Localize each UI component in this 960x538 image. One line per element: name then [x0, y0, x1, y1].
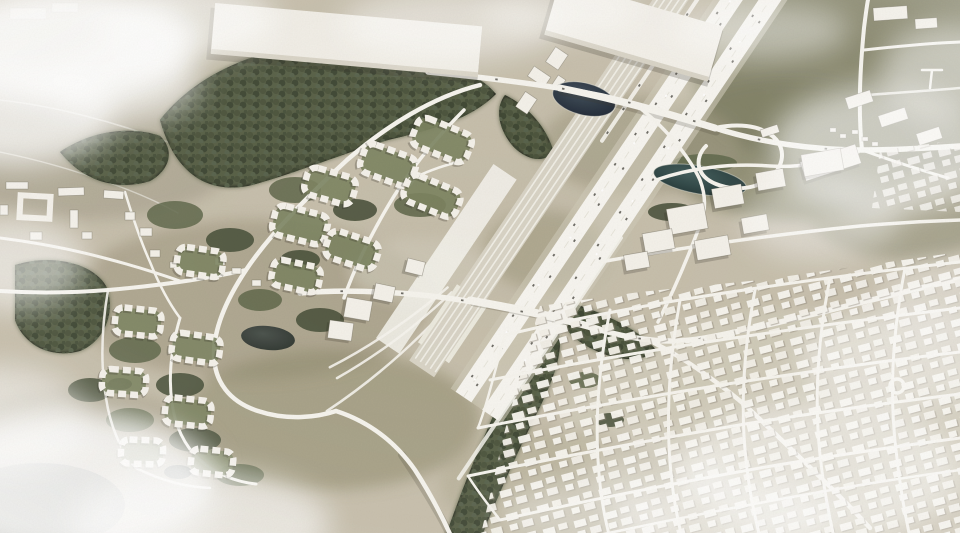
aerial-render: Aerial bird's-eye architectural renderin…: [0, 0, 960, 538]
masterplan-rendering: Aerial bird's-eye architectural renderin…: [0, 0, 960, 538]
bottom-white-strip: [0, 533, 960, 538]
film-grain: [0, 0, 960, 538]
